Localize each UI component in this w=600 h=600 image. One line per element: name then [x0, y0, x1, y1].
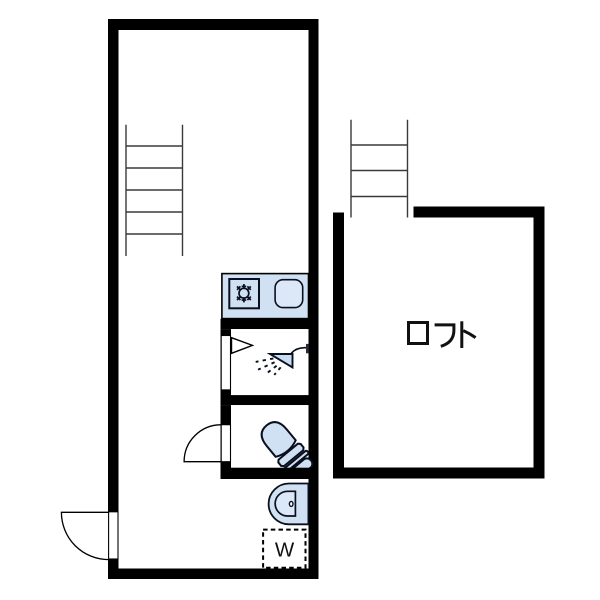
svg-text:W: W	[275, 539, 295, 562]
